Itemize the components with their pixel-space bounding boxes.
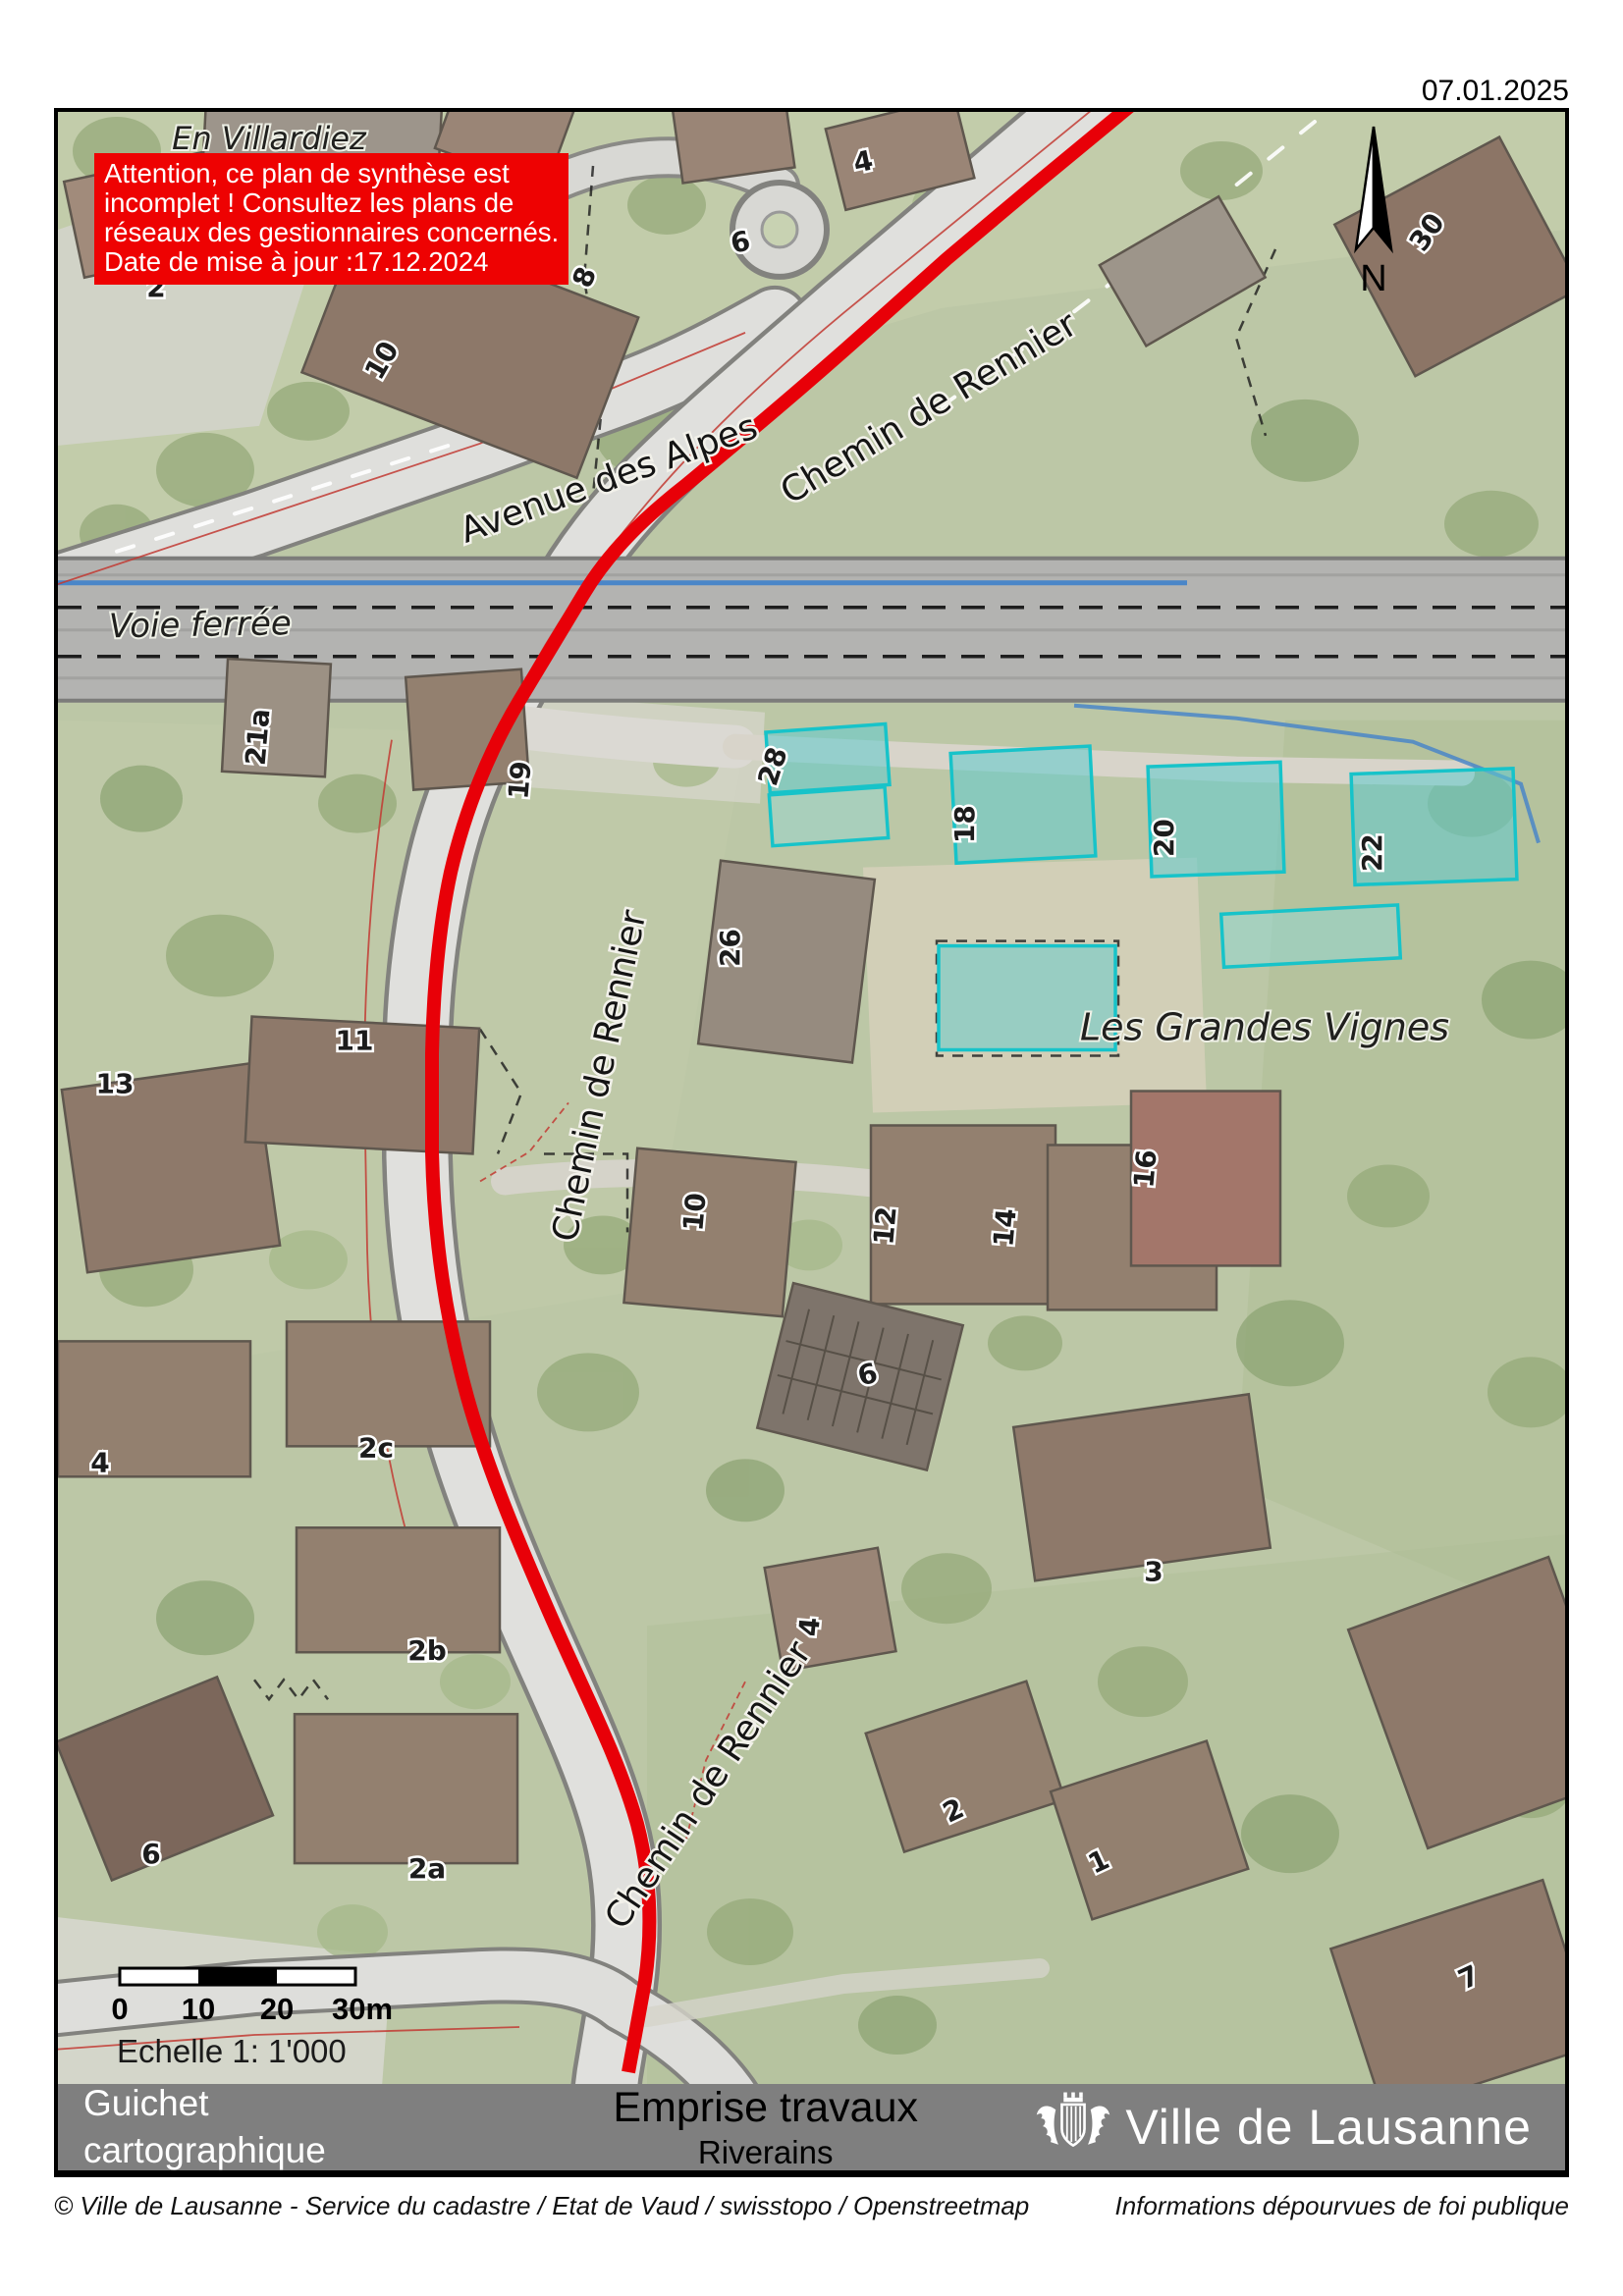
credits-right: Informations dépourvues de foi publique xyxy=(1114,2191,1569,2221)
footer-service-line1: Guichet xyxy=(83,2080,496,2127)
credits-line: © Ville de Lausanne - Service du cadastr… xyxy=(54,2191,1569,2221)
lausanne-coat-of-arms-icon xyxy=(1035,2092,1111,2163)
warning-line: Date de mise à jour :17.12.2024 xyxy=(104,247,559,277)
brand-name: Ville de Lausanne xyxy=(1125,2099,1532,2156)
warning-box: Attention, ce plan de synthèse est incom… xyxy=(94,153,568,285)
footer-brand: Ville de Lausanne xyxy=(1035,2092,1565,2163)
house-number: 3 xyxy=(1144,1555,1163,1587)
house-number: 16 xyxy=(1127,1148,1163,1190)
svg-text:N: N xyxy=(1360,258,1386,299)
house-number: 2a xyxy=(408,1852,446,1885)
plan-title: Emprise travaux xyxy=(496,2084,1035,2132)
house-number: 13 xyxy=(96,1068,135,1100)
scale-tick-label: 10 xyxy=(182,1992,215,2026)
house-number: 6 xyxy=(141,1838,160,1870)
footer-plan-title: Emprise travaux Riverains xyxy=(496,2084,1035,2171)
house-number: 20 xyxy=(1148,819,1180,857)
house-number: 4 xyxy=(792,1616,827,1637)
house-number: 11 xyxy=(336,1025,374,1057)
house-number: 18 xyxy=(948,805,981,843)
house-number: 14 xyxy=(987,1207,1022,1249)
plan-page: 07.01.2025 xyxy=(0,0,1623,2296)
place-label: En Villardiez xyxy=(172,120,367,157)
house-number: 2c xyxy=(358,1431,394,1464)
scale-tick-label: 20 xyxy=(260,1992,294,2026)
footer-service-line2: cartographique xyxy=(83,2127,496,2174)
house-number: 2b xyxy=(407,1634,447,1667)
warning-line: réseaux des gestionnaires concernés. xyxy=(104,218,559,247)
warning-line: Attention, ce plan de synthèse est xyxy=(104,159,559,188)
house-number: 12 xyxy=(867,1205,902,1247)
plan-date: 07.01.2025 xyxy=(54,75,1569,108)
map-frame: N 0102030m Echelle 1: 1'000 En Villardie… xyxy=(54,108,1569,2177)
svg-text:Echelle 1: 1'000: Echelle 1: 1'000 xyxy=(117,2033,347,2069)
scale-tick-label: 30m xyxy=(332,1992,393,2026)
house-number: 4 xyxy=(90,1446,109,1478)
map-svg: N 0102030m Echelle 1: 1'000 En Villardie… xyxy=(58,112,1565,2087)
house-number: 26 xyxy=(714,929,746,967)
credits-left: © Ville de Lausanne - Service du cadastr… xyxy=(54,2191,1029,2221)
map-canvas: N 0102030m Echelle 1: 1'000 En Villardie… xyxy=(58,112,1565,2087)
house-number: 10 xyxy=(676,1192,712,1233)
warning-line: incomplet ! Consultez les plans de xyxy=(104,188,559,218)
place-label: Voie ferrée xyxy=(109,604,293,646)
footer-service-name: Guichet cartographique xyxy=(58,2080,496,2174)
place-label: Les Grandes Vignes xyxy=(1080,1006,1449,1049)
house-number: 19 xyxy=(502,760,537,801)
house-number: 21a xyxy=(240,708,277,767)
footer-bar: Guichet cartographique Emprise travaux R… xyxy=(58,2084,1565,2173)
scale-tick-label: 0 xyxy=(111,1992,128,2026)
plan-subtitle: Riverains xyxy=(496,2134,1035,2171)
house-number: 22 xyxy=(1356,833,1388,872)
